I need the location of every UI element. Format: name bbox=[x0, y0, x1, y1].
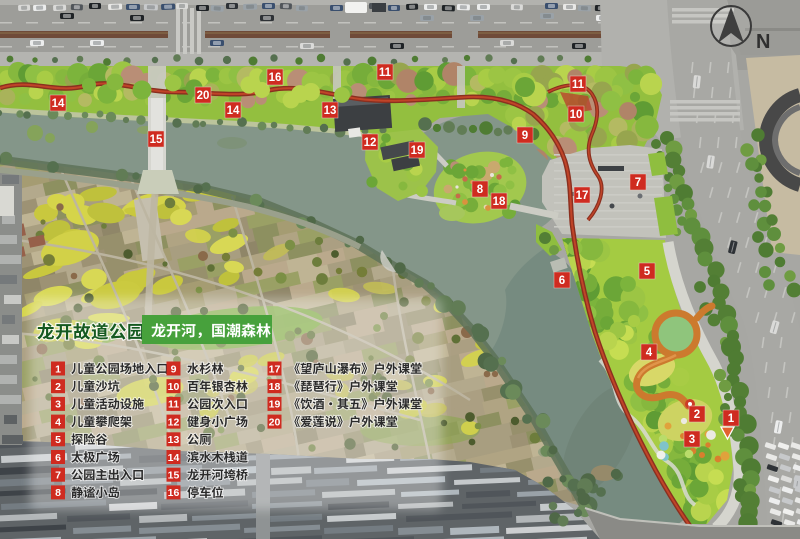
svg-text:10: 10 bbox=[570, 109, 583, 121]
svg-text:18: 18 bbox=[493, 196, 506, 208]
svg-text:3: 3 bbox=[689, 434, 695, 446]
svg-text:6: 6 bbox=[559, 275, 565, 287]
svg-text:3: 3 bbox=[55, 399, 61, 411]
svg-text:15: 15 bbox=[150, 134, 163, 146]
svg-text:20: 20 bbox=[269, 416, 281, 428]
svg-text:13: 13 bbox=[324, 105, 337, 117]
svg-text:12: 12 bbox=[168, 416, 180, 428]
svg-text:16: 16 bbox=[168, 487, 180, 499]
svg-text:9: 9 bbox=[171, 363, 177, 375]
svg-text:13: 13 bbox=[168, 434, 180, 446]
svg-text:5: 5 bbox=[55, 434, 61, 446]
svg-text:7: 7 bbox=[635, 177, 641, 189]
svg-text:17: 17 bbox=[576, 190, 589, 202]
svg-text:2: 2 bbox=[694, 409, 700, 421]
svg-text:6: 6 bbox=[55, 452, 61, 464]
svg-text:4: 4 bbox=[646, 347, 653, 359]
svg-text:11: 11 bbox=[572, 79, 585, 91]
svg-text:11: 11 bbox=[168, 399, 179, 411]
svg-text:16: 16 bbox=[269, 72, 282, 84]
svg-text:4: 4 bbox=[55, 416, 61, 428]
svg-text:8: 8 bbox=[477, 184, 484, 196]
svg-text:2: 2 bbox=[55, 381, 61, 393]
svg-text:10: 10 bbox=[168, 381, 180, 393]
svg-text:15: 15 bbox=[168, 470, 180, 482]
svg-text:1: 1 bbox=[55, 363, 61, 375]
svg-text:14: 14 bbox=[227, 105, 240, 117]
svg-text:14: 14 bbox=[168, 452, 180, 464]
svg-text:8: 8 bbox=[55, 487, 61, 499]
svg-text:20: 20 bbox=[197, 90, 210, 102]
svg-text:18: 18 bbox=[269, 381, 281, 393]
svg-text:12: 12 bbox=[364, 137, 377, 149]
svg-text:14: 14 bbox=[52, 98, 65, 110]
svg-text:19: 19 bbox=[269, 399, 281, 411]
svg-text:11: 11 bbox=[379, 67, 392, 79]
svg-text:N: N bbox=[756, 31, 770, 53]
svg-text:7: 7 bbox=[55, 470, 61, 482]
svg-text:19: 19 bbox=[411, 145, 424, 157]
svg-text:17: 17 bbox=[269, 363, 281, 375]
svg-text:5: 5 bbox=[644, 266, 651, 278]
svg-text:1: 1 bbox=[728, 413, 735, 425]
svg-text:9: 9 bbox=[522, 130, 528, 142]
